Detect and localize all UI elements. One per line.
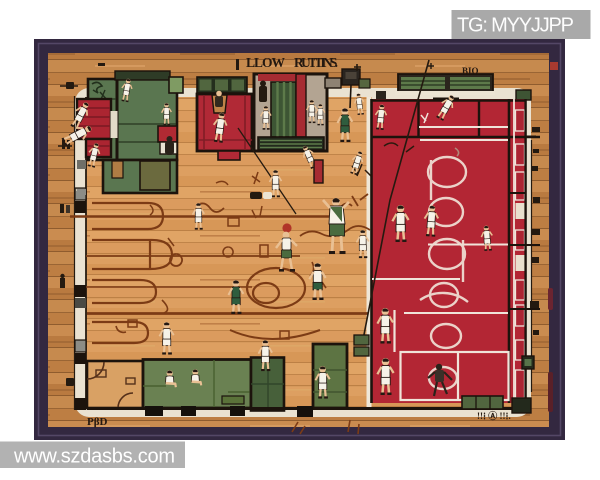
svg-text:www.szdasbs.com: www.szdasbs.com (13, 446, 175, 468)
svg-text:TG: MYYJJPP: TG: MYYJJPP (457, 15, 574, 37)
svg-text:LLOW: LLOW (246, 55, 286, 70)
svg-text:PβD: PβD (87, 416, 108, 428)
svg-text:!!⁞ Ⓐ !!⁞.: !!⁞ Ⓐ !!⁞. (477, 410, 511, 421)
svg-text:RUTTINS.: RUTTINS. (294, 55, 338, 70)
svg-text:BIO: BIO (462, 66, 479, 76)
